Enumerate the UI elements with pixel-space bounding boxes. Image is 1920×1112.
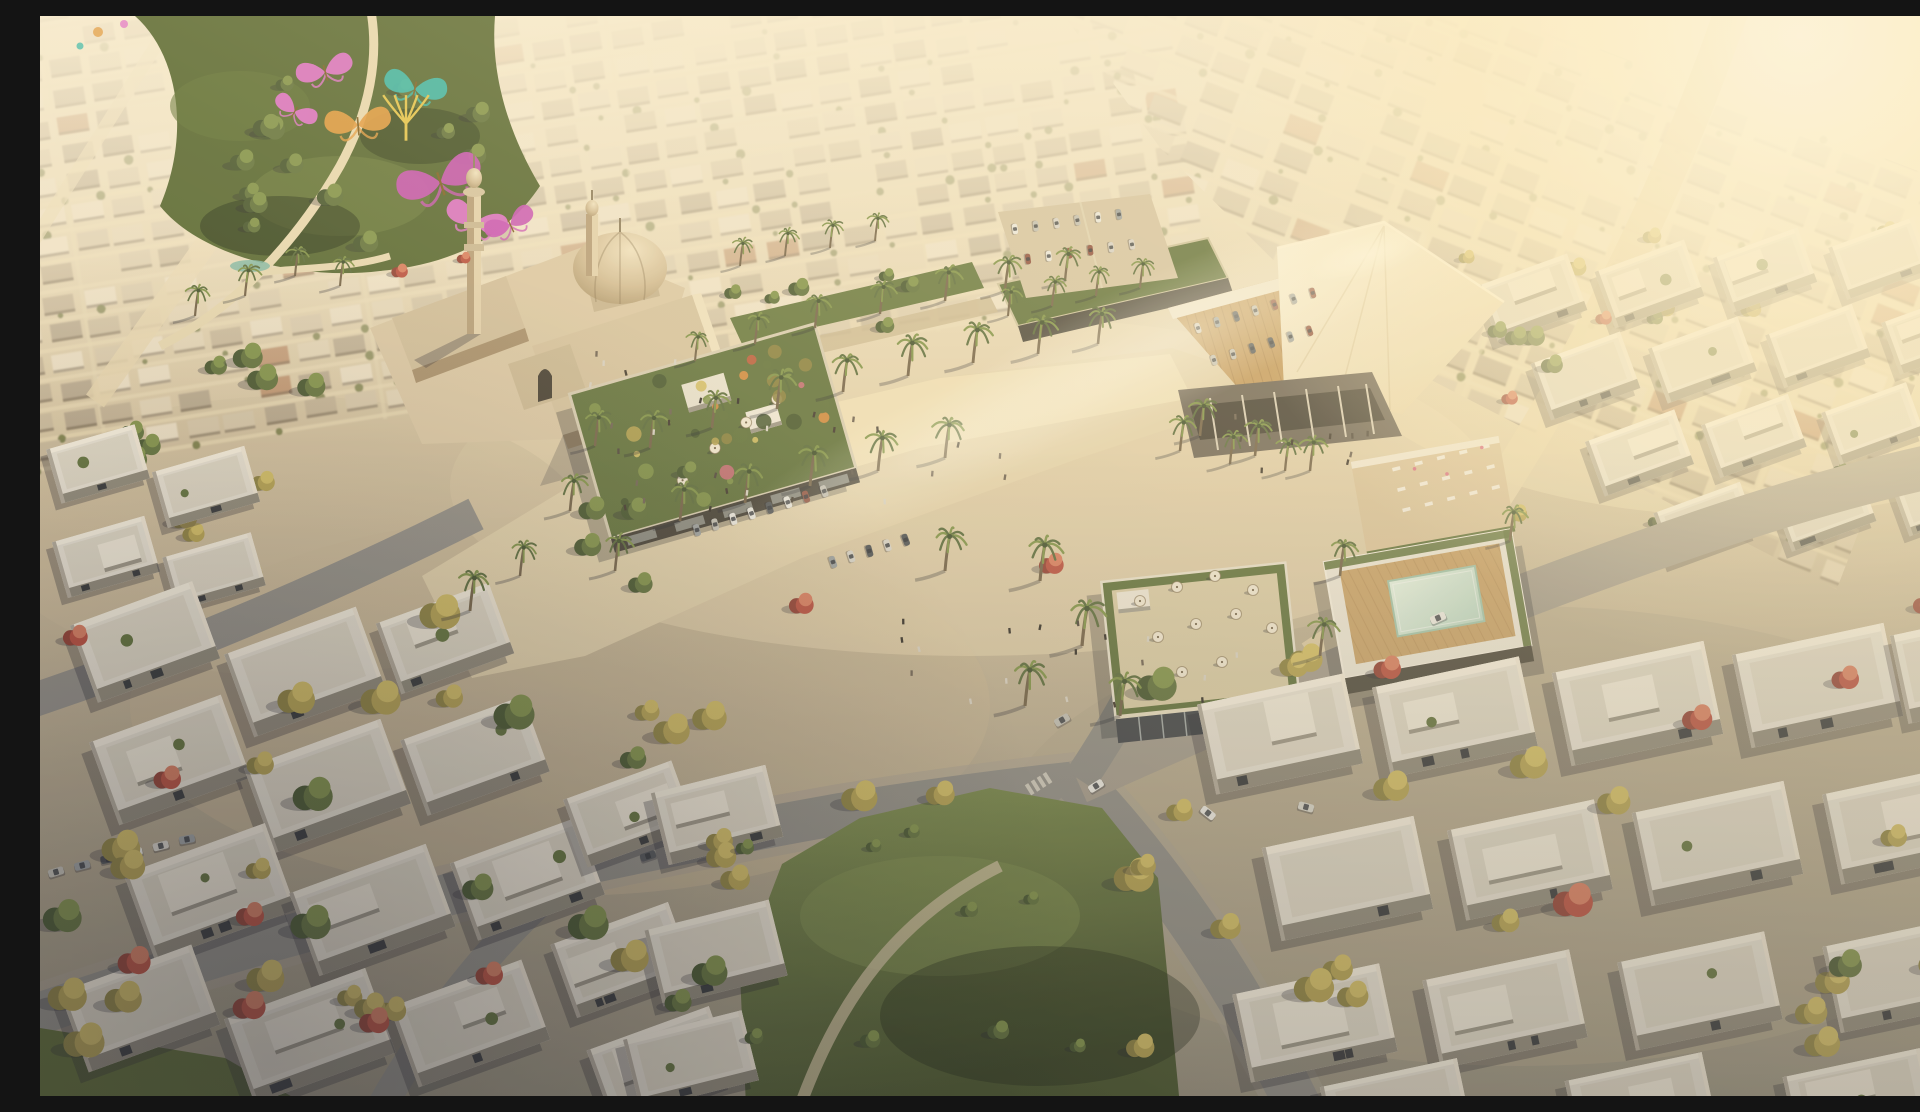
- color-grade: [40, 16, 1920, 1096]
- aerial-render: [40, 16, 1920, 1096]
- lighting-overlays: [40, 16, 1920, 1096]
- scene-canvas: [40, 16, 1920, 1096]
